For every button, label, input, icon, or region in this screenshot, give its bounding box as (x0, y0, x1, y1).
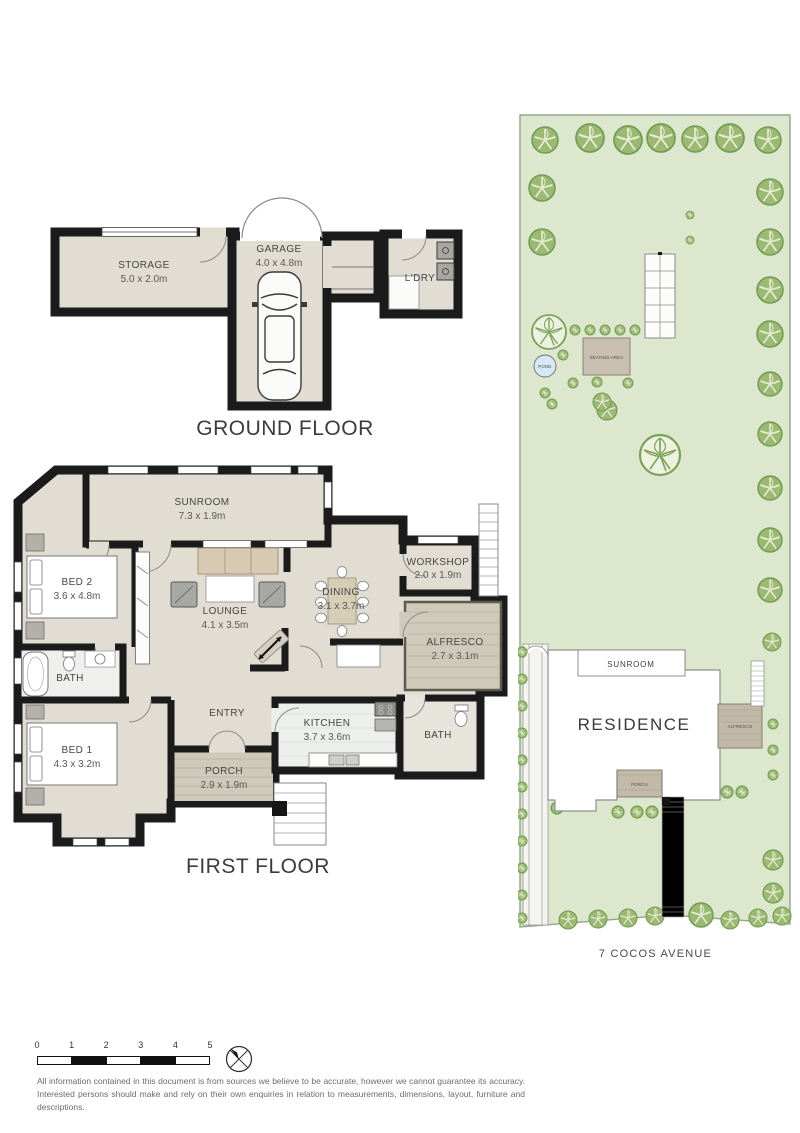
large-tree-icon (532, 315, 566, 349)
tree-icon (619, 909, 637, 927)
tree-icon (757, 277, 783, 303)
room-dims-dining: 3.1 x 3.7m (318, 601, 365, 612)
room-label-alfresco: ALFRESCO (426, 637, 483, 648)
footpath (662, 797, 684, 917)
residence-alfresco-label: ALFRESCO (728, 724, 753, 729)
scale-tick: 4 (173, 1040, 178, 1050)
first-floor-title: FIRST FLOOR (113, 855, 403, 879)
tree-icon (529, 175, 555, 201)
room-label-storage: STORAGE (118, 260, 170, 271)
bush-icon (631, 806, 643, 818)
bath2-fixtures (455, 705, 468, 727)
room-label-bed1: BED 1 (62, 745, 93, 756)
room-dims-kitchen: 3.7 x 3.6m (304, 732, 351, 743)
bush-icon (721, 786, 733, 798)
bush-icon (768, 719, 778, 729)
tree-icon (646, 907, 664, 925)
tree-icon (763, 850, 783, 870)
room-dims-workshop: 2.0 x 1.9m (415, 570, 462, 581)
tree-icon (559, 911, 577, 929)
bush-icon (547, 399, 557, 409)
bush-icon (518, 890, 527, 900)
tree-icon (532, 127, 558, 153)
tree-icon (576, 124, 604, 152)
wardrobe (136, 552, 150, 664)
bush-icon (600, 325, 610, 335)
tree-icon (647, 124, 675, 152)
room-label-entry: ENTRY (209, 708, 245, 719)
bush-icon (518, 701, 527, 711)
bush-icon (518, 913, 527, 923)
large-tree-icon (640, 435, 680, 475)
scale-segment (141, 1056, 176, 1065)
garage-doorway (240, 230, 320, 241)
tree-icon (773, 907, 791, 925)
scale-segment (37, 1056, 72, 1065)
bush-icon (518, 863, 527, 873)
tree-icon (716, 124, 744, 152)
residence-stairs (751, 661, 764, 706)
bush-icon (568, 378, 578, 388)
tree-icon (757, 229, 783, 255)
address-label: 7 COCOS AVENUE (518, 948, 793, 960)
pond: POND (534, 355, 556, 377)
bush-icon (592, 377, 602, 387)
bush-icon (615, 325, 625, 335)
tree-icon (614, 126, 642, 154)
room-dims-sunroom: 7.3 x 1.9m (179, 511, 226, 522)
tree-icon (755, 127, 781, 153)
bush-icon (768, 770, 778, 780)
bush-icon (768, 745, 778, 755)
bush-icon (518, 728, 527, 738)
floorplan-document: STORAGE 5.0 x 2.0m GARAGE 4.0 x 4.8m L'D… (0, 0, 800, 1133)
scale-segment (175, 1056, 210, 1065)
tree-icon (758, 422, 782, 446)
bush-icon (540, 388, 550, 398)
scale-tick: 1 (69, 1040, 74, 1050)
ground-floor-title: GROUND FLOOR (140, 417, 430, 441)
scale-segment (106, 1056, 141, 1065)
residence-sunroom-label: SUNROOM (607, 660, 654, 669)
bush-icon (518, 755, 527, 765)
bush-icon (736, 786, 748, 798)
room-dims-garage: 4.0 x 4.8m (256, 258, 303, 269)
bush-icon (518, 836, 527, 846)
room-dims-bed2: 3.6 x 4.8m (54, 591, 101, 602)
bush-icon (518, 782, 527, 792)
wall-opening (323, 246, 332, 288)
bush-icon (686, 236, 694, 244)
stairs-upper (479, 504, 498, 596)
hall-cupboard (337, 645, 380, 667)
room-label-porch: PORCH (205, 766, 243, 777)
room-label-bed2: BED 2 (62, 577, 93, 588)
pond-label: POND (538, 364, 551, 369)
room-storage (55, 232, 235, 312)
room-label-kitchen: KITCHEN (304, 718, 351, 729)
tree-icon (763, 883, 783, 903)
tree-icon (757, 321, 783, 347)
tree-icon (689, 903, 713, 927)
room-label-garage: GARAGE (256, 244, 301, 255)
scale-tick: 0 (34, 1040, 39, 1050)
stairs-lower (272, 783, 326, 845)
tree-icon (758, 372, 782, 396)
compass-icon (224, 1044, 254, 1074)
bush-icon (630, 325, 640, 335)
bush-icon (585, 325, 595, 335)
door-opening (402, 230, 426, 239)
tree-icon (589, 910, 607, 928)
room-label-lounge: LOUNGE (203, 606, 248, 617)
scale-tick: 5 (207, 1040, 212, 1050)
door-opening (200, 228, 226, 237)
bush-icon (570, 325, 580, 335)
bush-icon (518, 674, 527, 684)
scale-segment (72, 1056, 107, 1065)
seating-area-label: SEATING AREA (590, 355, 624, 360)
room-label-bath1: BATH (56, 673, 84, 684)
tree-icon (749, 909, 767, 927)
tree-icon (757, 179, 783, 205)
room-label-dining: DINING (322, 587, 359, 598)
room-dims-storage: 5.0 x 2.0m (121, 274, 168, 285)
site-plan-svg: SEATING AREA POND SUNROOM RESIDENCE (518, 112, 793, 950)
tree-icon (593, 393, 611, 411)
room-label-sunroom: SUNROOM (174, 497, 229, 508)
bush-icon (518, 647, 527, 657)
seating-area: SEATING AREA (583, 338, 630, 375)
residence-porch: PORCH (617, 770, 662, 797)
tree-icon (721, 911, 739, 929)
room-label-workshop: WORKSHOP (407, 557, 470, 568)
residence-label: RESIDENCE (578, 715, 691, 734)
bush-icon (623, 378, 633, 388)
room-dims-porch: 2.9 x 1.9m (201, 780, 248, 791)
residence-alfresco: ALFRESCO (718, 704, 762, 748)
bush-icon (686, 211, 694, 219)
tree-icon (758, 528, 782, 552)
first-floor-plan: SUNROOM 7.3 x 1.9m BED 2 3.6 x 4.8m LOUN… (13, 462, 508, 862)
room-dims-bed1: 4.3 x 3.2m (54, 759, 101, 770)
bush-icon (612, 806, 624, 818)
bush-icon (646, 806, 658, 818)
bush-icon (558, 350, 568, 360)
garden-structure (645, 252, 675, 338)
bush-icon (518, 809, 527, 819)
room-dims-alfresco: 2.7 x 3.1m (432, 651, 479, 662)
tree-icon (758, 578, 782, 602)
room-dims-lounge: 4.1 x 3.5m (202, 620, 249, 631)
residence-porch-label: PORCH (631, 782, 648, 787)
tree-icon (758, 476, 782, 500)
disclaimer-text: All information contained in this docume… (37, 1075, 525, 1113)
room-label-ldry: L'DRY (405, 273, 435, 284)
tree-icon (682, 126, 708, 152)
scale-tick: 2 (104, 1040, 109, 1050)
scale-tick: 3 (138, 1040, 143, 1050)
scale-bar: 0 1 2 3 4 5 (37, 1040, 237, 1066)
room-label-bath2: BATH (424, 730, 452, 741)
tree-icon (529, 229, 555, 255)
tree-icon (763, 633, 781, 651)
ground-floor-plan: STORAGE 5.0 x 2.0m GARAGE 4.0 x 4.8m L'D… (40, 192, 480, 442)
car-icon (252, 272, 307, 400)
